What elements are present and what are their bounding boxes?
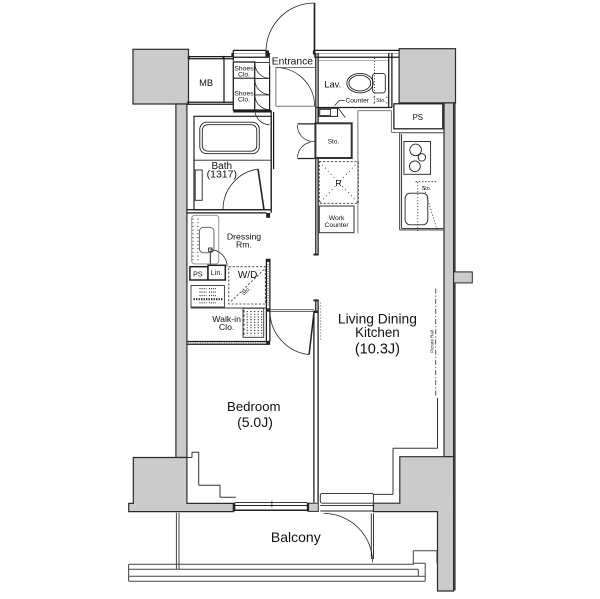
svg-text:Clo.: Clo. (238, 72, 250, 79)
svg-text:Work: Work (329, 215, 345, 222)
svg-text:(10.3J): (10.3J) (355, 342, 400, 358)
svg-text:Kitchen: Kitchen (355, 325, 400, 340)
svg-text:Lav.: Lav. (324, 80, 341, 90)
svg-text:Counter: Counter (346, 98, 370, 105)
svg-text:(1317): (1317) (207, 169, 237, 181)
svg-text:Sto.: Sto. (376, 98, 385, 104)
svg-text:Sto.: Sto. (422, 186, 432, 192)
svg-text:Bedroom: Bedroom (227, 399, 281, 414)
svg-text:(5.0J): (5.0J) (237, 414, 273, 430)
svg-text:PS: PS (193, 271, 203, 278)
svg-text:Rm.: Rm. (236, 240, 252, 250)
svg-text:R: R (335, 178, 341, 188)
svg-text:Entrance: Entrance (272, 56, 313, 67)
svg-text:PS: PS (413, 113, 423, 122)
svg-text:Sto.: Sto. (328, 139, 340, 146)
svg-text:Lin.: Lin. (211, 268, 223, 277)
svg-text:MB: MB (199, 78, 213, 88)
svg-text:Clo.: Clo. (219, 322, 234, 332)
svg-text:Picture Rail: Picture Rail (430, 330, 435, 352)
svg-text:W/D: W/D (238, 270, 257, 281)
svg-text:Clo.: Clo. (238, 97, 250, 104)
svg-text:Counter: Counter (325, 222, 350, 229)
svg-text:Balcony: Balcony (271, 529, 321, 545)
